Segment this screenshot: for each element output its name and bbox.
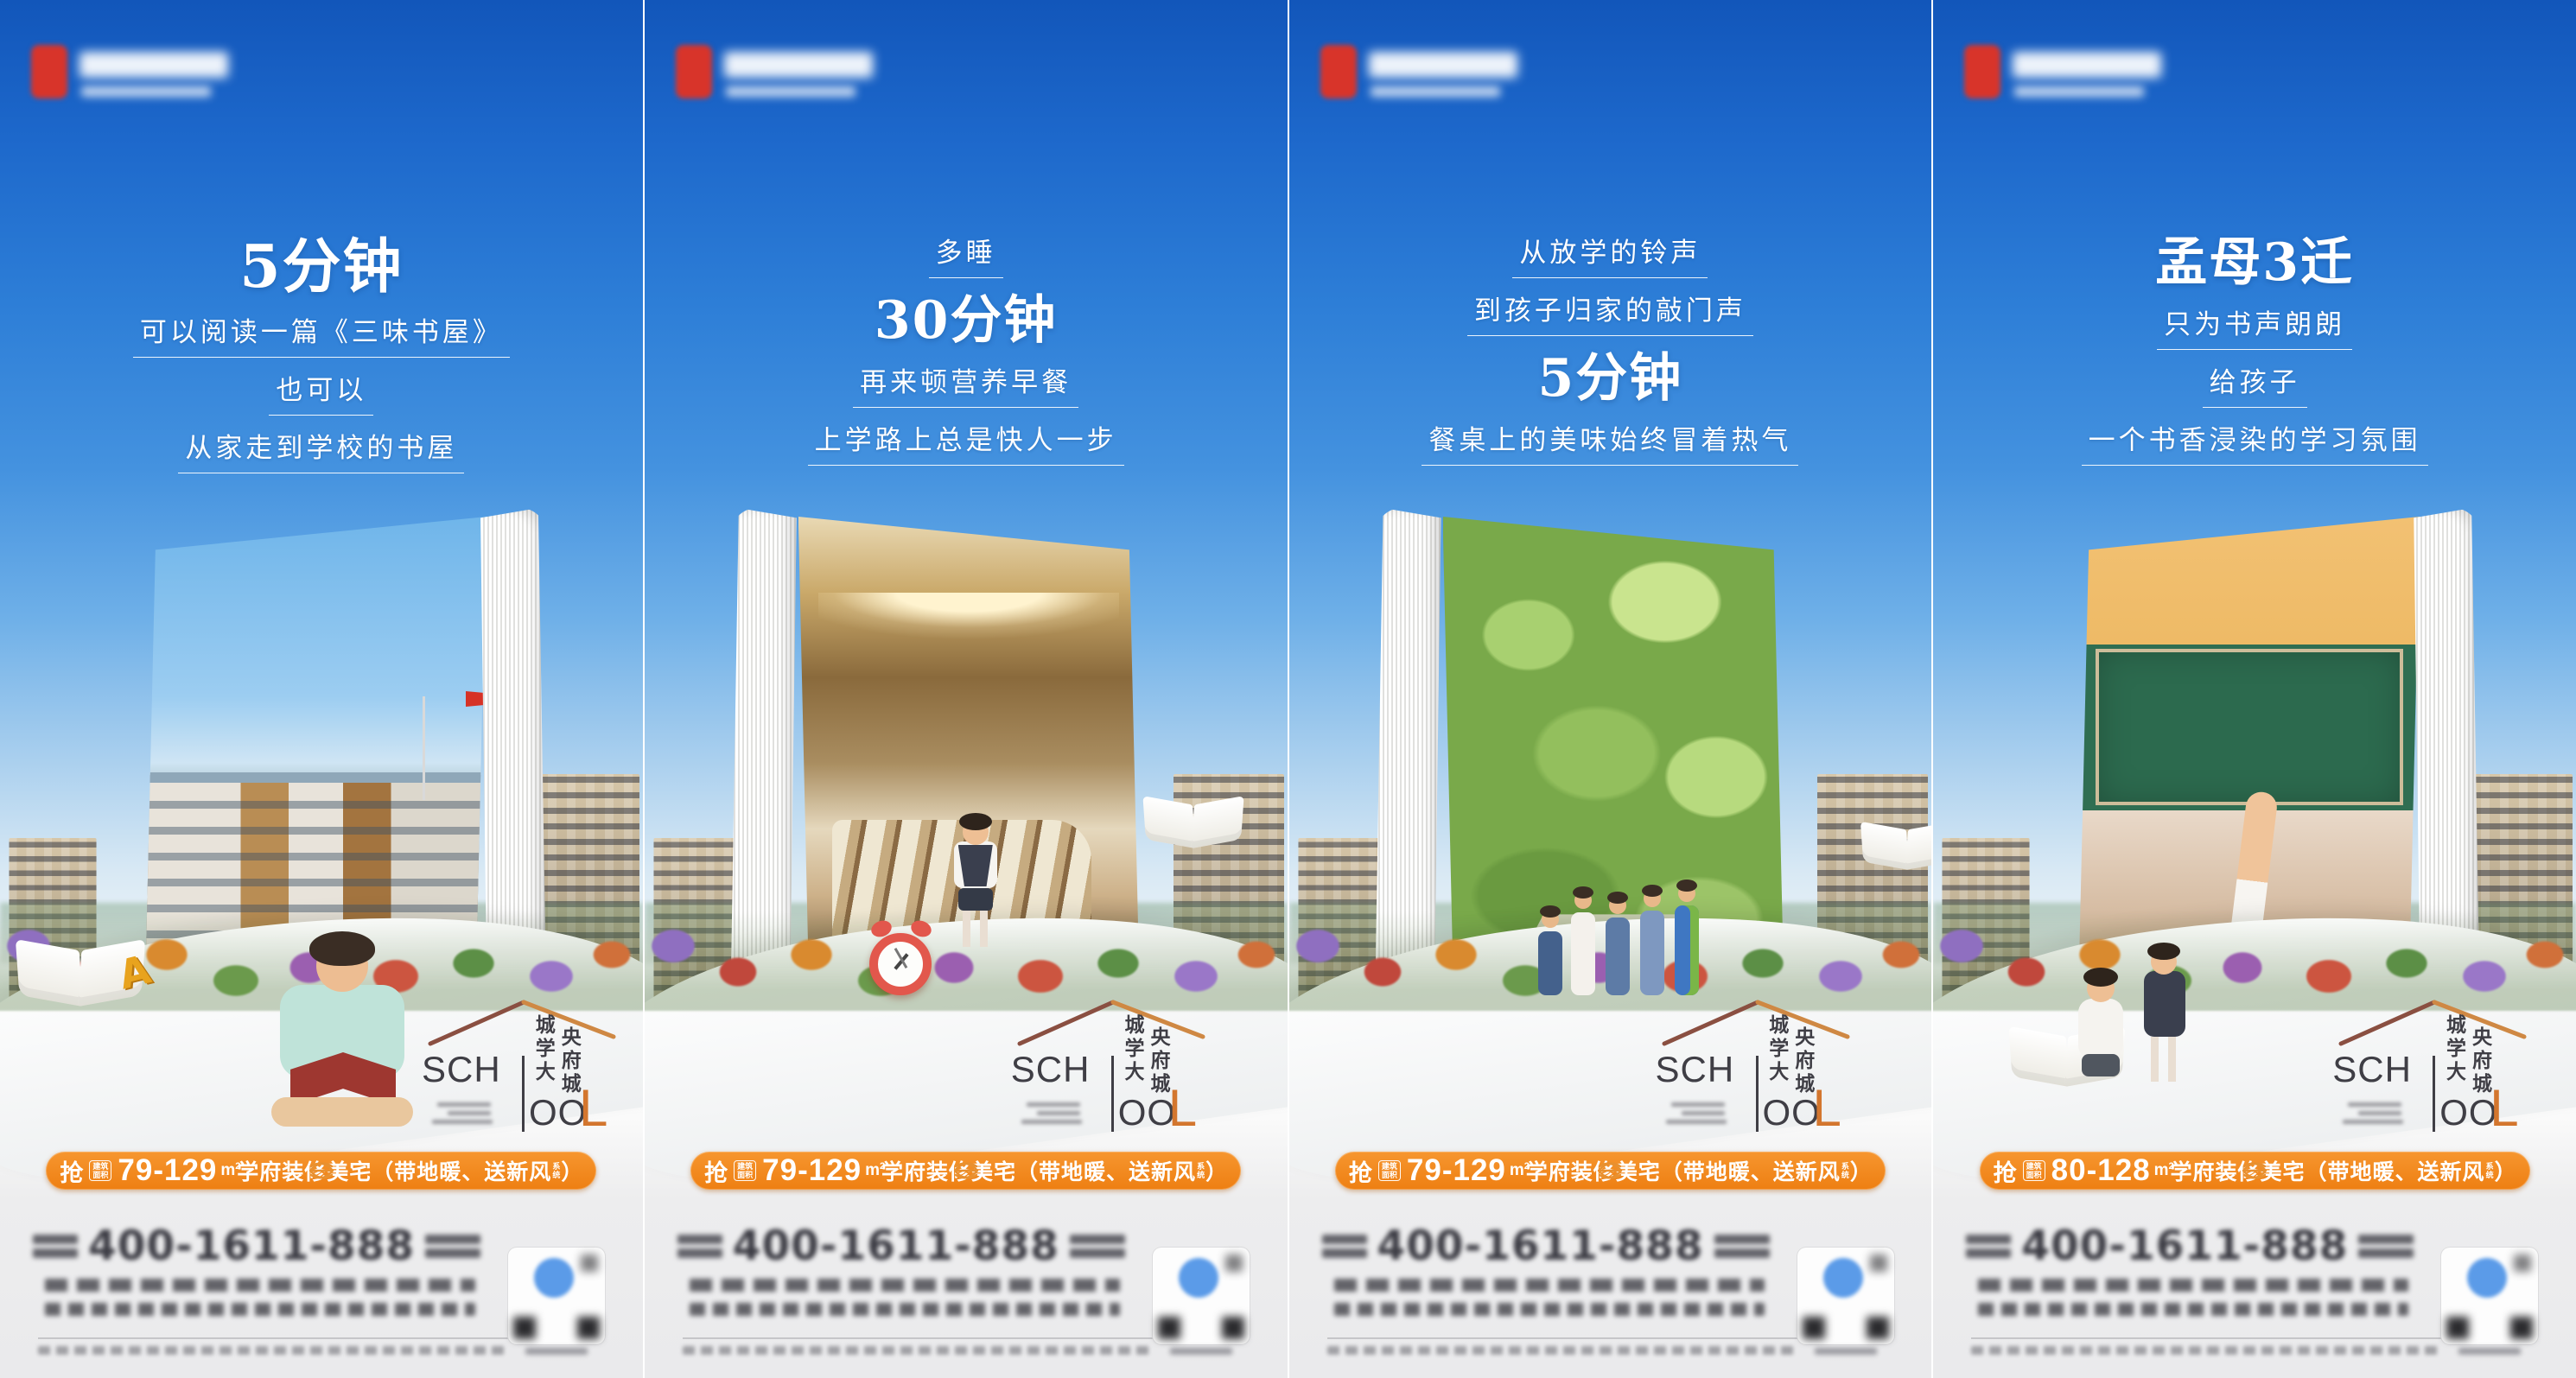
banner-close-bracket: ） — [2495, 1155, 2516, 1186]
brand-subtext-blur — [726, 86, 855, 97]
brand-logo — [31, 43, 256, 112]
children-walking-figures — [1538, 860, 1711, 995]
phone-side-blur — [1714, 1235, 1770, 1258]
flourish-right-icon — [308, 1157, 334, 1184]
banner-body-text: 学府装修美宅（带地暖、送新风 — [1526, 1155, 1841, 1186]
qr-code — [1153, 1248, 1250, 1344]
qr-corner — [577, 1317, 600, 1339]
banner-area-value: 79-129 — [118, 1153, 217, 1188]
qr-corner — [2514, 1254, 2531, 1272]
banner-area-value: 79-129 — [1407, 1153, 1506, 1188]
girl-figure — [2071, 975, 2132, 1087]
suffix-bottom: 统 — [1841, 1171, 1849, 1179]
reading-child-figure — [256, 938, 429, 1133]
qr-code — [1797, 1248, 1894, 1344]
brand-wordmark-blur — [1369, 52, 1517, 78]
footer-divider — [38, 1337, 576, 1339]
qr-blue-dot — [1823, 1258, 1863, 1298]
phone-label-blur — [1322, 1235, 1367, 1258]
poster-headline: 孟母3迁 — [2155, 233, 2354, 293]
school-vertical-left: 城学大 — [1766, 1014, 1788, 1084]
schoolboy-figure — [947, 819, 1004, 953]
contact-row: 400-1611-888 — [1966, 1222, 2433, 1270]
poster-subline: 上学路上总是快人一步 — [808, 427, 1124, 466]
school-sch-text: SCH — [2332, 1049, 2412, 1090]
school-vertical-left: 城学大 — [2443, 1014, 2465, 1084]
qr-corner — [1222, 1317, 1244, 1339]
copy-block: 5分钟可以阅读一篇《三味书屋》也可以从家走到学校的书屋 — [0, 230, 643, 483]
poster-headline: 30分钟 — [875, 291, 1058, 351]
banner-suffix-small: 系 统 — [552, 1162, 560, 1180]
banner-grab-label: 抢 — [1349, 1154, 1372, 1188]
flying-book-icon — [1860, 812, 1932, 866]
badge-top: 建筑 — [2026, 1162, 2042, 1171]
banner-close-bracket: ） — [561, 1155, 582, 1186]
badge-bottom: 面积 — [1382, 1171, 1397, 1179]
badge-top: 建筑 — [1382, 1162, 1397, 1171]
badge-top: 建筑 — [737, 1162, 753, 1171]
unit-base: m — [865, 1161, 880, 1179]
flourish-right-icon — [1597, 1157, 1623, 1184]
qr-blue-dot — [1179, 1258, 1218, 1298]
banner-unit: m2 — [865, 1161, 880, 1180]
address-line-blur — [1334, 1279, 1765, 1292]
flourish-right-icon — [953, 1157, 979, 1184]
copy-block: 多睡30分钟再来顿营养早餐上学路上总是快人一步 — [645, 230, 1288, 475]
poster-card: 孟母3迁只为书声朗朗给孩子一个书香浸染的学习氛围 SCH 城学大 央府城 OO … — [1933, 0, 2576, 1378]
poster-card: 多睡30分钟再来顿营养早餐上学路上总是快人一步 SCH 城学大 央府城 OO L — [645, 0, 1288, 1378]
school-vertical-left: 城学大 — [532, 1014, 554, 1084]
school-logo: SCH 城学大 央府城 OO L — [1011, 992, 1212, 1149]
banner-unit: m2 — [1510, 1161, 1524, 1180]
poster-subline: 一个书香浸染的学习氛围 — [2082, 427, 2428, 466]
address-line2-blur — [1334, 1303, 1765, 1316]
copy-block: 从放学的铃声到孩子归家的敲门声5分钟餐桌上的美味始终冒着热气 — [1289, 230, 1932, 475]
school-vertical-right: 央府城 — [1792, 1026, 1814, 1096]
banner-close-bracket: ） — [1205, 1155, 1227, 1186]
suffix-bottom: 统 — [552, 1171, 560, 1179]
school-sch-text: SCH — [1656, 1049, 1735, 1090]
suffix-bottom: 统 — [1197, 1171, 1205, 1179]
suffix-top: 系 — [1841, 1162, 1849, 1171]
poster-headline: 5分钟 — [239, 233, 403, 301]
address-line2-blur — [1978, 1303, 2408, 1316]
qr-corner — [1803, 1317, 1825, 1339]
school-logo: SCH 城学大 央府城 OO L — [2332, 992, 2533, 1149]
poster-subline: 餐桌上的美味始终冒着热气 — [1422, 427, 1798, 466]
qr-caption-blur — [1815, 1348, 1877, 1355]
banner-suffix-small: 系 统 — [2486, 1162, 2494, 1180]
poster-subline: 再来顿营养早餐 — [853, 369, 1078, 408]
banner-body-text: 学府装修美宅（带地暖、送新风 — [881, 1155, 1196, 1186]
qr-corner — [1225, 1254, 1243, 1272]
address-line-blur — [1978, 1279, 2408, 1292]
copy-block: 孟母3迁只为书声朗朗给孩子一个书香浸染的学习氛围 — [1933, 230, 2576, 475]
school-l-text: L — [579, 1078, 607, 1138]
school-vertical-right: 央府城 — [1148, 1026, 1169, 1096]
brand-emblem-icon — [31, 45, 67, 98]
banner-unit: m2 — [220, 1161, 235, 1180]
poster-subline: 从家走到学校的书屋 — [178, 435, 464, 473]
poster-card: 5分钟可以阅读一篇《三味书屋》也可以从家走到学校的书屋 A SCH 城学大 央府… — [0, 0, 643, 1378]
school-logo: SCH 城学大 央府城 OO L — [1656, 992, 1856, 1149]
footer-divider — [1971, 1337, 2509, 1339]
poster-series: 5分钟可以阅读一篇《三味书屋》也可以从家走到学校的书屋 A SCH 城学大 央府… — [0, 0, 2576, 1378]
poster-headline: 5分钟 — [1538, 349, 1683, 409]
badge-top: 建筑 — [92, 1162, 108, 1171]
roofline-icon — [422, 992, 622, 1049]
banner-body-text: 学府装修美宅（带地暖、送新风 — [237, 1155, 551, 1186]
banner-grab-label: 抢 — [1994, 1154, 2017, 1188]
qr-caption-blur — [1170, 1348, 1232, 1355]
banner-area-badge: 建筑 面积 — [1378, 1160, 1401, 1182]
flower-bed — [1933, 868, 2576, 1011]
school-logo: SCH 城学大 央府城 OO L — [422, 992, 622, 1149]
suffix-top: 系 — [1197, 1162, 1205, 1171]
banner-unit: m2 — [2154, 1161, 2169, 1180]
footer-divider — [1327, 1337, 1865, 1339]
student-figure — [2137, 949, 2192, 1094]
promo-banner-row: 抢 建筑 面积 79-129 m2 学府装修美宅（带地暖、送新风 系 统 ） — [0, 1149, 643, 1192]
brand-emblem-icon — [1964, 45, 2000, 98]
qr-blue-dot — [2467, 1258, 2507, 1298]
contact-row: 400-1611-888 — [1322, 1222, 1789, 1270]
school-sch-text: SCH — [1011, 1049, 1091, 1090]
contact-row: 400-1611-888 — [33, 1222, 499, 1270]
flying-book-icon — [1142, 785, 1243, 843]
banner-body-text: 学府装修美宅（带地暖、送新风 — [2171, 1155, 2485, 1186]
brand-subtext-blur — [1371, 86, 1500, 97]
brand-logo — [1320, 43, 1545, 112]
suffix-top: 系 — [2486, 1162, 2494, 1171]
unit-sup: 2 — [1524, 1161, 1530, 1172]
brand-wordmark-blur — [80, 52, 228, 78]
disclaimer-line-blur — [683, 1346, 1149, 1355]
poster-subline: 只为书声朗朗 — [2157, 311, 2352, 350]
address-line-blur — [45, 1279, 475, 1292]
unit-sup: 2 — [235, 1161, 240, 1172]
promo-banner-row: 抢 建筑 面积 80-128 m2 学府装修美宅（带地暖、送新风 系 统 ） — [1933, 1149, 2576, 1192]
footer-divider — [683, 1337, 1220, 1339]
brand-logo — [1964, 43, 2189, 112]
school-l-text: L — [2490, 1078, 2518, 1138]
badge-bottom: 面积 — [2026, 1171, 2042, 1179]
banner-grab-label: 抢 — [60, 1154, 83, 1188]
banner-grab-label: 抢 — [704, 1154, 728, 1188]
poster-subline: 可以阅读一篇《三味书屋》 — [133, 319, 510, 358]
flourish-right-icon — [2242, 1157, 2268, 1184]
banner-area-value: 79-129 — [762, 1153, 862, 1188]
school-sch-text: SCH — [422, 1049, 501, 1090]
qr-corner — [1158, 1317, 1180, 1339]
qr-caption-blur — [2458, 1348, 2521, 1355]
poster-subline: 从放学的铃声 — [1512, 239, 1708, 278]
phone-label-blur — [33, 1235, 78, 1258]
brand-subtext-blur — [81, 86, 211, 97]
disclaimer-line-blur — [1971, 1346, 2438, 1355]
unit-sup: 2 — [880, 1161, 885, 1172]
roofline-icon — [1656, 992, 1856, 1049]
unit-base: m — [2154, 1161, 2169, 1179]
poster-subline: 给孩子 — [2203, 369, 2307, 408]
suffix-top: 系 — [552, 1162, 560, 1171]
brand-logo — [676, 43, 900, 112]
address-line2-blur — [45, 1303, 475, 1316]
phone-label-blur — [1966, 1235, 2011, 1258]
poster-subline: 也可以 — [269, 377, 373, 416]
phone-side-blur — [1070, 1235, 1125, 1258]
phone-number: 400-1611-888 — [1377, 1222, 1704, 1270]
brand-emblem-icon — [1320, 45, 1357, 98]
poster-card: 从放学的铃声到孩子归家的敲门声5分钟餐桌上的美味始终冒着热气 SCH 城学大 央… — [1289, 0, 1932, 1378]
qr-corner — [2510, 1317, 2533, 1339]
banner-suffix-small: 系 统 — [1841, 1162, 1849, 1180]
school-vertical-left: 城学大 — [1122, 1014, 1143, 1084]
roofline-icon — [2332, 992, 2533, 1049]
disclaimer-line-blur — [38, 1346, 505, 1355]
promo-banner-row: 抢 建筑 面积 79-129 m2 学府装修美宅（带地暖、送新风 系 统 ） — [1289, 1149, 1932, 1192]
school-stem-line — [1756, 1056, 1759, 1132]
qr-corner — [2446, 1317, 2469, 1339]
phone-number: 400-1611-888 — [2021, 1222, 2348, 1270]
qr-corner — [1867, 1317, 1889, 1339]
qr-corner — [581, 1254, 598, 1272]
phone-number: 400-1611-888 — [88, 1222, 415, 1270]
school-l-text: L — [1813, 1078, 1841, 1138]
school-stem-line — [2433, 1056, 2435, 1132]
school-stem-line — [1111, 1056, 1114, 1132]
banner-suffix-small: 系 统 — [1197, 1162, 1205, 1180]
qr-blue-dot — [534, 1258, 574, 1298]
unit-sup: 2 — [2169, 1161, 2174, 1172]
address-line2-blur — [690, 1303, 1120, 1316]
school-vertical-right: 央府城 — [558, 1026, 580, 1096]
brand-emblem-icon — [676, 45, 712, 98]
phone-side-blur — [425, 1235, 480, 1258]
promo-banner-row: 抢 建筑 面积 79-129 m2 学府装修美宅（带地暖、送新风 系 统 ） — [645, 1149, 1288, 1192]
qr-code — [508, 1248, 605, 1344]
school-vertical-right: 央府城 — [2469, 1026, 2490, 1096]
school-l-text: L — [1168, 1078, 1197, 1138]
banner-area-badge: 建筑 面积 — [89, 1160, 111, 1182]
roofline-icon — [1011, 992, 1212, 1049]
school-stem-line — [522, 1056, 525, 1132]
banner-close-bracket: ） — [1850, 1155, 1872, 1186]
brand-wordmark-blur — [2013, 52, 2161, 78]
address-line-blur — [690, 1279, 1120, 1292]
phone-label-blur — [677, 1235, 722, 1258]
banner-area-value: 80-128 — [2051, 1153, 2151, 1188]
disclaimer-line-blur — [1327, 1346, 1794, 1355]
brand-subtext-blur — [2014, 86, 2144, 97]
badge-bottom: 面积 — [92, 1171, 108, 1179]
qr-code — [2441, 1248, 2538, 1344]
phone-side-blur — [2358, 1235, 2414, 1258]
banner-area-badge: 建筑 面积 — [734, 1160, 756, 1182]
phone-number: 400-1611-888 — [733, 1222, 1059, 1270]
poster-subline: 到孩子归家的敲门声 — [1467, 297, 1753, 336]
unit-base: m — [1510, 1161, 1524, 1179]
qr-caption-blur — [525, 1348, 588, 1355]
contact-row: 400-1611-888 — [677, 1222, 1144, 1270]
alarm-clock-icon — [862, 918, 942, 1002]
suffix-bottom: 统 — [2486, 1171, 2494, 1179]
unit-base: m — [220, 1161, 235, 1179]
banner-area-badge: 建筑 面积 — [2023, 1160, 2045, 1182]
brand-wordmark-blur — [724, 52, 873, 78]
qr-corner — [1870, 1254, 1887, 1272]
qr-corner — [513, 1317, 536, 1339]
badge-bottom: 面积 — [737, 1171, 753, 1179]
poster-subline: 多睡 — [929, 239, 1003, 278]
